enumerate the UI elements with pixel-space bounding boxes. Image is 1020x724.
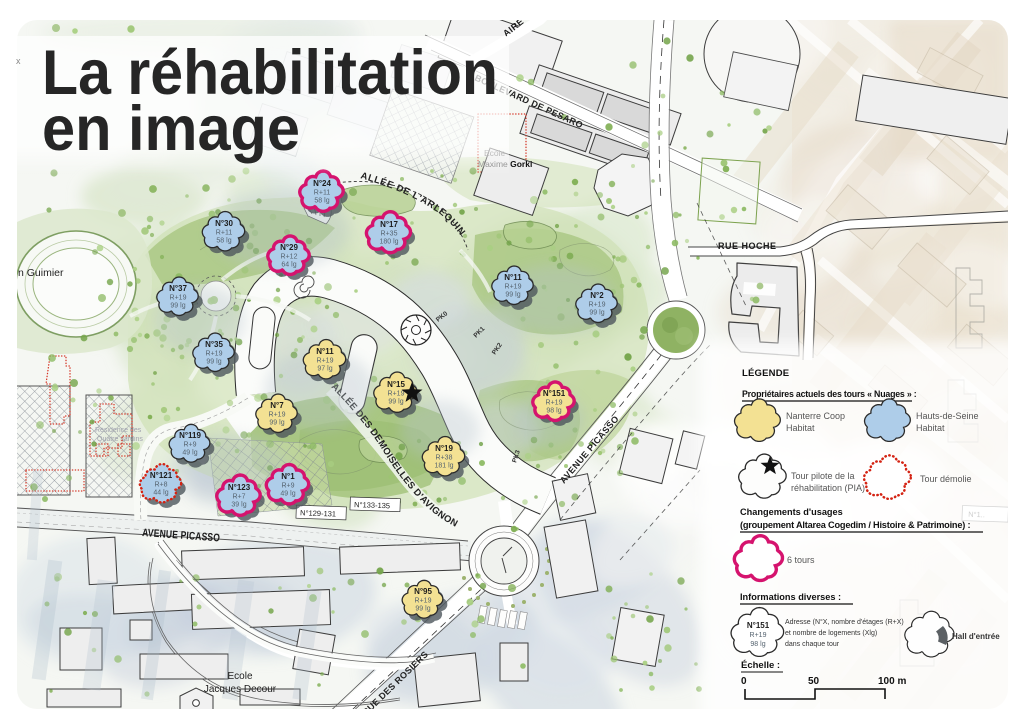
svg-text:6 tours: 6 tours [787, 555, 815, 565]
svg-text:R+19: R+19 [206, 351, 223, 358]
svg-text:64 lg: 64 lg [281, 262, 296, 269]
svg-text:N°7: N°7 [270, 401, 284, 410]
svg-text:R+11: R+11 [216, 230, 233, 237]
svg-text:Hall d'entrée: Hall d'entrée [952, 632, 1000, 641]
svg-text:RUE HOCHE: RUE HOCHE [718, 241, 777, 251]
svg-text:N°17: N°17 [380, 220, 398, 229]
svg-text:0: 0 [741, 676, 747, 687]
svg-text:R+19: R+19 [546, 400, 563, 407]
svg-text:R+19: R+19 [589, 302, 606, 309]
svg-text:N°151: N°151 [543, 389, 566, 398]
svg-text:R+35: R+35 [381, 231, 398, 238]
svg-text:N°11: N°11 [504, 273, 522, 282]
svg-text:dans chaque tour: dans chaque tour [785, 641, 840, 648]
svg-text:R+19: R+19 [415, 598, 432, 605]
svg-text:Propriétaires actuels des tour: Propriétaires actuels des tours « Nuages… [742, 389, 917, 399]
svg-text:N°1: N°1 [281, 472, 295, 481]
svg-text:R+19: R+19 [750, 632, 767, 639]
svg-text:98 lg: 98 lg [546, 408, 561, 415]
svg-text:N°29: N°29 [280, 243, 298, 252]
svg-text:R+19: R+19 [269, 412, 286, 419]
svg-text:50: 50 [808, 676, 820, 687]
svg-text:Tour pilote de la: Tour pilote de la [791, 471, 855, 481]
svg-text:Adresse (N°X, nombre d'étages: Adresse (N°X, nombre d'étages (R+X) [785, 618, 904, 626]
svg-text:R+12: R+12 [281, 254, 298, 261]
svg-text:181 lg: 181 lg [434, 463, 453, 470]
svg-text:98 lg: 98 lg [750, 641, 765, 648]
svg-text:N°133-135: N°133-135 [354, 500, 390, 510]
svg-text:et nombre de logements (Xlg): et nombre de logements (Xlg) [785, 630, 877, 637]
svg-text:R+19: R+19 [170, 295, 187, 302]
svg-text:N°129-131: N°129-131 [300, 508, 336, 518]
svg-text:n Guimier: n Guimier [18, 267, 64, 279]
svg-text:39 lg: 39 lg [231, 502, 246, 509]
svg-text:49 lg: 49 lg [182, 450, 197, 457]
svg-text:R+11: R+11 [314, 190, 331, 197]
svg-text:Jacques Decour: Jacques Decour [204, 684, 277, 695]
svg-text:R+9: R+9 [183, 442, 196, 449]
svg-text:N°119: N°119 [179, 431, 201, 440]
svg-text:N°2: N°2 [590, 291, 604, 300]
svg-text:99 lg: 99 lg [269, 420, 284, 427]
svg-text:58 lg: 58 lg [314, 198, 329, 205]
svg-text:Habitat: Habitat [916, 423, 945, 433]
svg-text:Changements d'usages: Changements d'usages [740, 507, 843, 517]
svg-text:Nanterre Coop: Nanterre Coop [786, 411, 845, 421]
svg-text:R+19: R+19 [505, 284, 522, 291]
svg-text:R+8: R+8 [154, 482, 167, 489]
svg-text:R+19: R+19 [317, 358, 334, 365]
svg-text:99 lg: 99 lg [388, 399, 403, 406]
svg-text:99 lg: 99 lg [505, 292, 520, 299]
svg-text:N°24: N°24 [313, 179, 331, 188]
svg-text:Tour démolie: Tour démolie [920, 474, 972, 484]
svg-text:N°19: N°19 [435, 444, 453, 453]
svg-text:en image: en image [42, 94, 300, 164]
svg-text:Hauts-de-Seine: Hauts-de-Seine [916, 411, 979, 421]
svg-text:x: x [16, 56, 21, 66]
svg-text:44 lg: 44 lg [153, 490, 168, 497]
svg-text:180 lg: 180 lg [379, 239, 398, 246]
svg-text:N°30: N°30 [215, 219, 233, 228]
svg-text:58 lg: 58 lg [216, 238, 231, 245]
svg-text:R+9: R+9 [281, 483, 294, 490]
svg-text:Informations diverses :: Informations diverses : [740, 592, 841, 602]
svg-text:N°95: N°95 [414, 587, 432, 596]
svg-text:99 lg: 99 lg [170, 303, 185, 310]
svg-text:97 lg: 97 lg [317, 366, 332, 373]
svg-text:Ecole: Ecole [227, 671, 252, 682]
svg-text:N°123: N°123 [228, 483, 251, 492]
svg-text:LÉGENDE: LÉGENDE [742, 368, 789, 379]
svg-text:N°11: N°11 [316, 347, 334, 356]
svg-text:N°151: N°151 [747, 621, 770, 630]
svg-text:Habitat: Habitat [786, 423, 815, 433]
svg-text:N°15: N°15 [387, 380, 405, 389]
svg-text:R+38: R+38 [436, 455, 453, 462]
svg-text:N°35: N°35 [205, 340, 223, 349]
svg-text:Échelle :: Échelle : [741, 660, 780, 671]
svg-text:99 lg: 99 lg [415, 606, 430, 613]
svg-text:99 lg: 99 lg [589, 310, 604, 317]
svg-text:réhabilitation (PIA): réhabilitation (PIA) [791, 483, 865, 493]
svg-text:49 lg: 49 lg [280, 491, 295, 498]
svg-text:R+19: R+19 [388, 391, 405, 398]
svg-text:99 lg: 99 lg [206, 359, 221, 366]
svg-text:R+7: R+7 [232, 494, 245, 501]
svg-text:N°37: N°37 [169, 284, 187, 293]
svg-text:100 m: 100 m [878, 676, 906, 687]
svg-text:(groupement Altarea Cogedim /: (groupement Altarea Cogedim / Histoire &… [740, 520, 970, 530]
svg-text:N°121: N°121 [150, 471, 173, 480]
